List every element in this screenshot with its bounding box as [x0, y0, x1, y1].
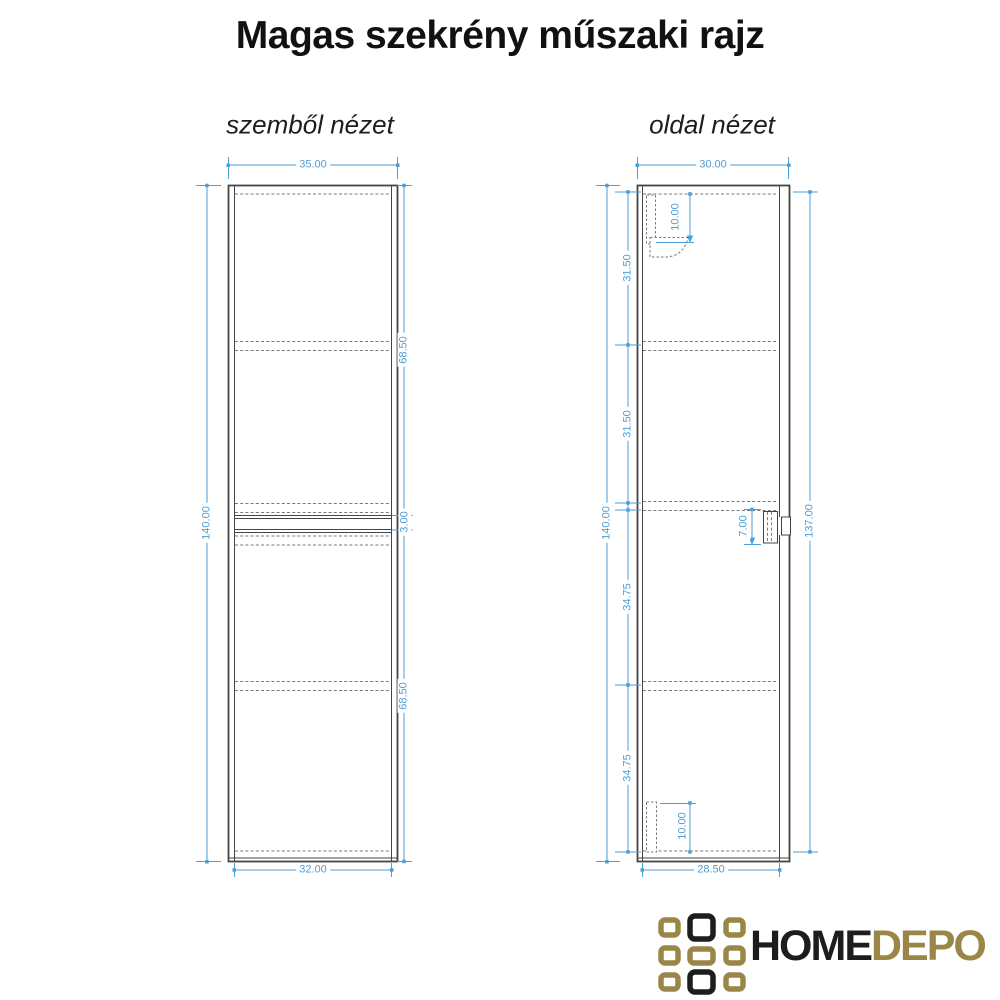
homedepo-logo: HOMEDEPO — [650, 900, 995, 1000]
side-dim-mid-inset: 7.00 — [738, 512, 751, 539]
side-dim-height: 140.00 — [601, 503, 614, 543]
side-dim-bottom-inset: 10.00 — [677, 809, 690, 843]
cabinet-technical-drawing — [0, 0, 1000, 1000]
logo-text-home: HOME — [750, 922, 871, 970]
side-dim-segment-1: 31.50 — [622, 251, 635, 285]
front-dim-gap: 3.00 — [399, 508, 412, 535]
side-view-drawing — [638, 185, 791, 862]
front-view-drawing — [229, 185, 398, 862]
side-mid-support-block — [764, 512, 778, 544]
technical-drawing-page: Magas szekrény műszaki rajz szemből néze… — [0, 0, 1000, 1000]
front-dim-upper-section: 68.50 — [398, 333, 411, 367]
homedepo-logo-text: HOMEDEPO — [750, 920, 985, 972]
side-bottom-rail — [647, 802, 657, 852]
side-dim-door-height: 137.00 — [804, 501, 817, 541]
side-dim-bottom-depth: 28.50 — [694, 864, 728, 877]
side-dim-segment-3: 34.75 — [622, 580, 635, 614]
front-carcass-outline — [229, 186, 398, 862]
side-dim-segment-2: 31.50 — [622, 407, 635, 441]
side-dim-top-inset: 10.00 — [670, 200, 683, 234]
homedepo-logo-grid-icon — [655, 906, 750, 998]
front-dim-top-width: 35.00 — [296, 159, 330, 172]
side-dim-top-depth: 30.00 — [696, 159, 730, 172]
front-dim-lower-section: 68.50 — [398, 679, 411, 713]
front-dim-height: 140.00 — [201, 503, 214, 543]
front-dim-bottom-width: 32.00 — [296, 864, 330, 877]
side-hanging-rail — [647, 195, 656, 244]
side-door-gap-notch — [782, 517, 791, 535]
side-dim-segment-4: 34.75 — [622, 751, 635, 785]
logo-text-depo: DEPO — [871, 922, 985, 970]
